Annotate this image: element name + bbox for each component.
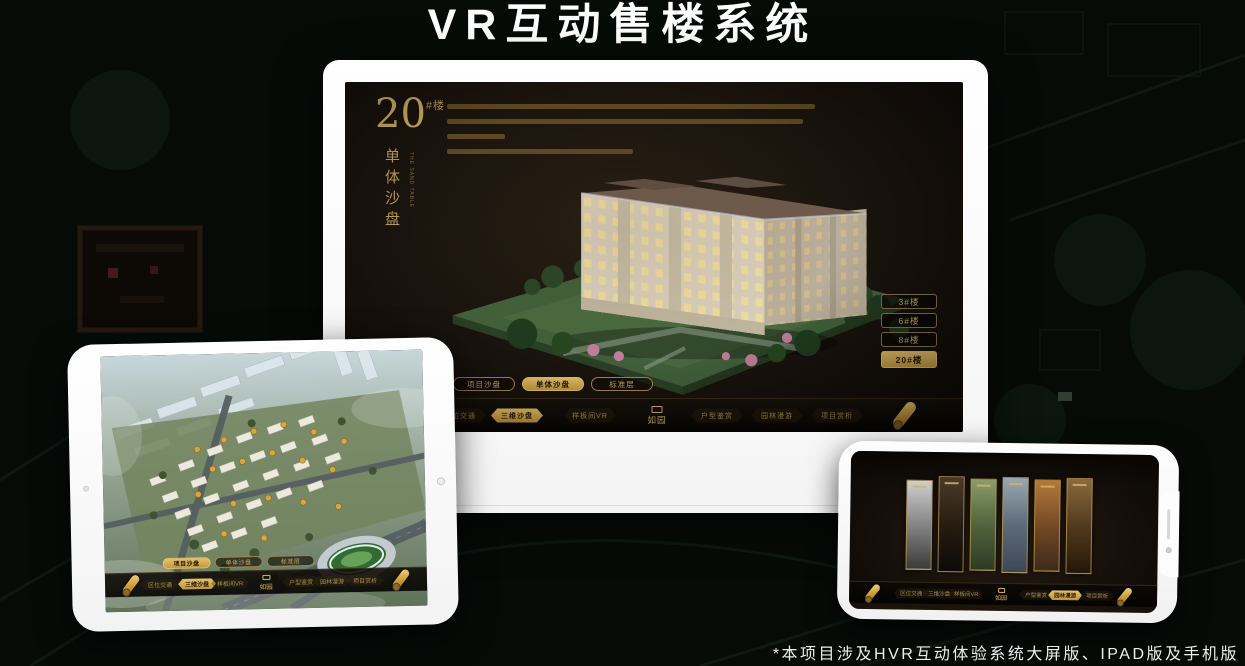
- scroll-icon[interactable]: [864, 583, 881, 602]
- headline-suffix: #楼: [426, 100, 445, 112]
- tab-standard-floor[interactable]: 标准层: [591, 377, 653, 391]
- camera-icon: [1166, 547, 1172, 553]
- panel-caption: [976, 485, 990, 487]
- brand-logo-text: 如园: [995, 592, 1007, 601]
- panel-caption: [944, 482, 958, 484]
- panel-caption: [1040, 485, 1054, 487]
- poster-canvas: VR互动售楼系统 20#楼 单体沙盘 THE SAND TABLE: [0, 0, 1245, 666]
- seal-icon: [262, 574, 270, 579]
- nav-item-garden[interactable]: 园林漫游: [751, 408, 803, 424]
- nav-item-floorplans[interactable]: 户型鉴赏: [691, 408, 743, 424]
- tablet-screen: 项目沙盘 单体沙盘 标准层 区位交通 三维沙盘 样板间VR 如园 户型鉴赏 园林…: [100, 350, 427, 613]
- tablet-nav-item-location[interactable]: 区位交通: [141, 578, 179, 591]
- phone-notch: [1158, 491, 1179, 577]
- tab-single-sandbox[interactable]: 单体沙盘: [522, 377, 584, 391]
- tablet-nav-item-garden[interactable]: 园林漫游: [313, 575, 351, 588]
- floor-button-6[interactable]: 6#楼: [881, 313, 937, 328]
- phone-device: 区位交通 三维沙盘 样板间VR 如园 户型鉴赏 园林漫游 项目赏析: [837, 441, 1179, 624]
- scene-panel-garden[interactable]: [969, 478, 996, 570]
- tablet-nav-item-gallery[interactable]: 项目赏析: [346, 574, 384, 587]
- page-title: VR互动售楼系统: [0, 2, 1245, 49]
- scene-panel-courtyard[interactable]: [905, 480, 932, 570]
- description-line: [447, 104, 815, 109]
- scene-panel-interior[interactable]: [937, 476, 964, 572]
- panel-caption: [1072, 484, 1086, 486]
- floor-button-3[interactable]: 3#楼: [881, 294, 937, 309]
- brand-logo: 如园: [995, 587, 1007, 601]
- floor-button-8[interactable]: 8#楼: [881, 332, 937, 347]
- phone-nav-item-gallery[interactable]: 项目赏析: [1080, 590, 1114, 601]
- seal-icon: [651, 406, 662, 413]
- tab-project-sandbox[interactable]: 项目沙盘: [453, 377, 515, 391]
- scene-panel-study[interactable]: [1065, 478, 1092, 574]
- headline-caption: THE SAND TABLE: [408, 152, 414, 208]
- description-line: [447, 119, 803, 124]
- tablet-tab-project-sandbox[interactable]: 项目沙盘: [163, 557, 211, 569]
- nav-item-sandbox[interactable]: 三维沙盘: [491, 408, 543, 424]
- nav-item-gallery[interactable]: 项目赏析: [811, 408, 863, 424]
- scene-panel-autumn[interactable]: [1033, 479, 1060, 571]
- brand-logo-text: 如园: [647, 414, 666, 426]
- tablet-device: 项目沙盘 单体沙盘 标准层 区位交通 三维沙盘 样板间VR 如园 户型鉴赏 园林…: [67, 337, 459, 632]
- panel-caption: [912, 486, 926, 488]
- mode-tabs: 项目沙盘 单体沙盘 标准层: [453, 377, 653, 391]
- headline: 20#楼: [375, 94, 445, 134]
- floor-button-20[interactable]: 20#楼: [881, 351, 937, 368]
- phone-screen: 区位交通 三维沙盘 样板间VR 如园 户型鉴赏 园林漫游 项目赏析: [849, 451, 1159, 613]
- tablet-tab-standard-floor[interactable]: 标准层: [266, 555, 314, 567]
- building-model-viewport[interactable]: [440, 134, 920, 399]
- speaker-icon: [1167, 509, 1170, 539]
- brand-logo: 如园: [647, 406, 666, 426]
- brand-logo: 如园: [259, 574, 272, 590]
- scroll-icon[interactable]: [391, 568, 411, 590]
- phone-nav-item-garden[interactable]: 园林漫游: [1048, 590, 1082, 601]
- tablet-nav-item-sandbox[interactable]: 三维沙盘: [178, 578, 216, 591]
- scroll-icon[interactable]: [1116, 587, 1133, 606]
- tablet-camera-icon: [83, 485, 89, 491]
- tablet-tab-single-sandbox[interactable]: 单体沙盘: [215, 556, 263, 568]
- phone-navbar: 区位交通 三维沙盘 样板间VR 如园 户型鉴赏 园林漫游 项目赏析: [849, 581, 1157, 607]
- headline-vertical: 单体沙盘: [382, 148, 403, 232]
- tablet-home-button[interactable]: [437, 477, 445, 485]
- tablet-nav-item-vr-rooms[interactable]: 样板间VR: [211, 577, 249, 590]
- scroll-icon[interactable]: [121, 574, 141, 596]
- panel-caption: [1008, 483, 1022, 485]
- phone-nav-item-vr-rooms[interactable]: 样板间VR: [949, 588, 983, 599]
- nav-item-vr-rooms[interactable]: 样板间VR: [564, 408, 616, 424]
- brand-logo-text: 如园: [260, 580, 273, 590]
- scroll-icon[interactable]: [891, 400, 918, 430]
- headline-number: 20: [375, 91, 426, 137]
- phone-nav-item-floorplans[interactable]: 户型鉴赏: [1019, 589, 1053, 600]
- scene-panel-building[interactable]: [1001, 477, 1028, 573]
- footnote: *本项目涉及HVR互动体验系统大屏版、IPAD版及手机版: [773, 640, 1239, 664]
